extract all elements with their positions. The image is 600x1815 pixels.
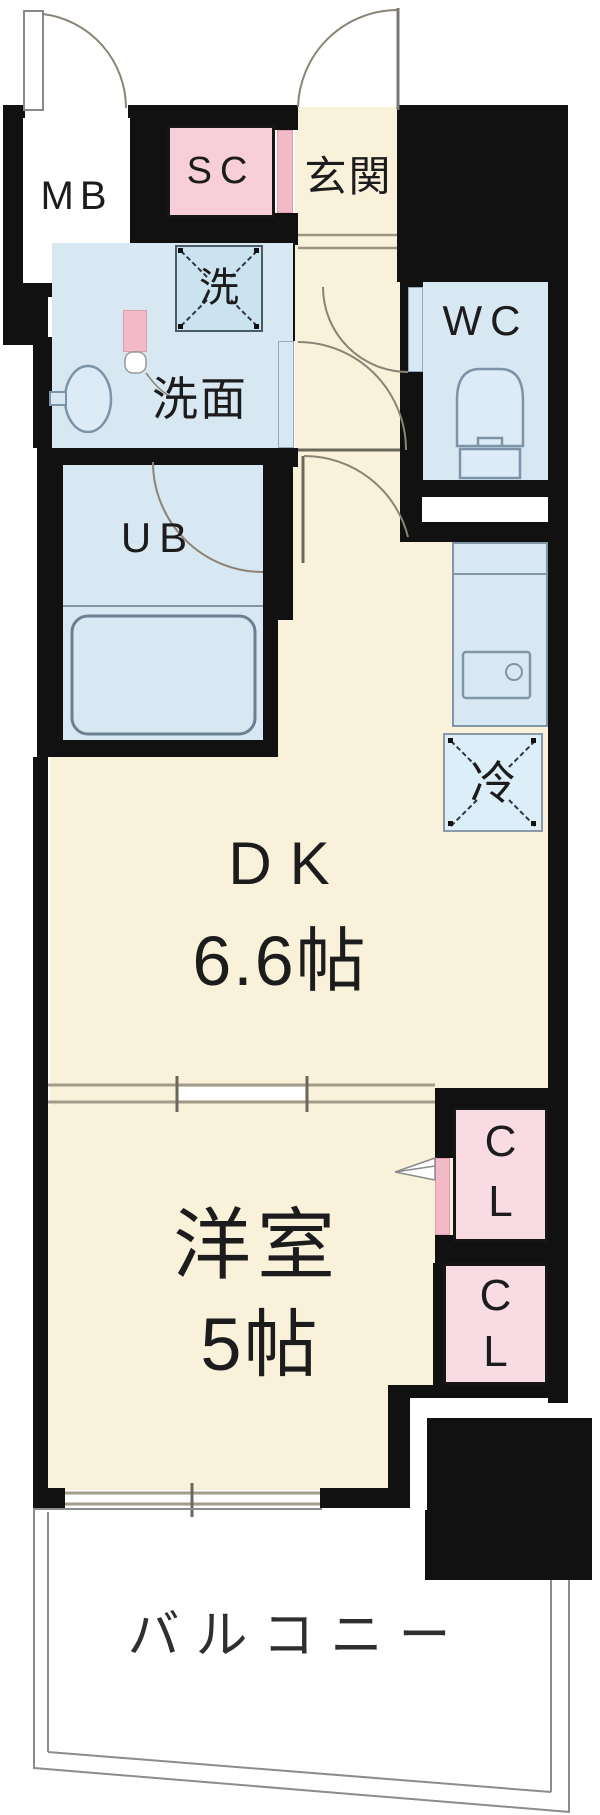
laundry-label: 洗 <box>175 268 263 308</box>
closet2-label-line2: L <box>443 1330 548 1374</box>
dk-size-label: 6.6帖 <box>30 926 530 996</box>
toilet-bowl <box>457 369 523 446</box>
washroom-label: 洗面 <box>100 376 300 422</box>
closet1-door-indicator <box>395 1158 435 1180</box>
genkan-label: 玄関 <box>295 156 402 198</box>
closet2-label-line1: C <box>443 1274 548 1318</box>
linework-layer <box>0 0 600 1815</box>
partition-panel <box>179 1087 305 1100</box>
bathtub <box>72 616 255 734</box>
fridge-label: 冷 <box>443 760 543 806</box>
entrance-door-arc <box>298 10 397 107</box>
mb-door-leaf <box>24 11 43 110</box>
wc-label: WC <box>423 300 548 342</box>
dk-door-arc <box>304 456 408 537</box>
sink-spout <box>50 392 66 405</box>
kitchen-sink <box>463 652 530 698</box>
toilet-tank <box>460 449 520 478</box>
wc-door-arc <box>323 287 408 372</box>
kitchen-faucet <box>506 664 522 680</box>
dk-label: DK <box>38 834 538 894</box>
western-room-label: 洋室 <box>7 1206 507 1284</box>
mb-label: MB <box>23 176 130 216</box>
floorplan: MB SC 玄関 洗 洗面 WC UB 冷 DK 6.6帖 洋室 5帖 C L … <box>0 0 600 1815</box>
balcony-label: バルコニー <box>47 1610 547 1662</box>
closet1-label-line1: C <box>453 1120 548 1164</box>
sc-label: SC <box>167 152 275 190</box>
mb-door-arc <box>43 14 126 108</box>
closet1-label-line2: L <box>453 1180 548 1224</box>
ub-label: UB <box>63 517 253 559</box>
washroom-mini-door-end <box>125 352 146 373</box>
washroom-door-arc <box>298 342 406 450</box>
western-room-size-label: 5帖 <box>10 1308 510 1382</box>
